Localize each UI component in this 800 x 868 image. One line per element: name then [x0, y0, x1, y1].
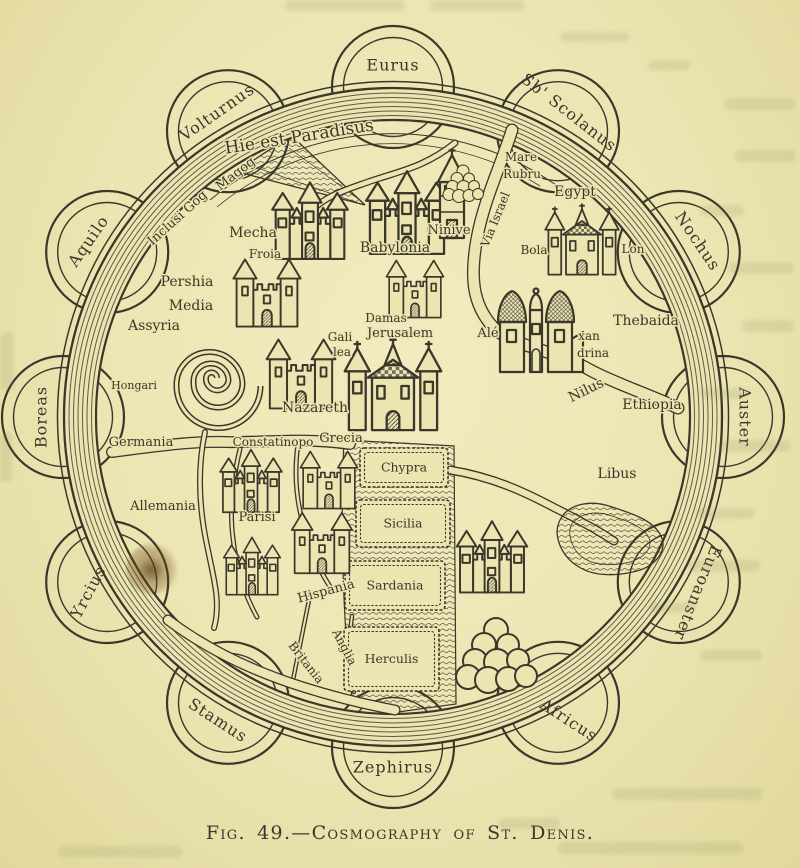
wind-label-eurus: Eurus: [366, 56, 419, 75]
africa-castle: [457, 521, 528, 592]
nazareth-castle: [267, 340, 336, 409]
place-label-germania: Germania: [109, 435, 174, 450]
place-label-ninive: Ninive: [427, 223, 470, 238]
place-label-bola: Bola: [520, 243, 547, 257]
place-label-mare: Mare: [505, 150, 537, 164]
grecia-castle: [300, 451, 357, 508]
place-label-mecha: Mecha: [229, 225, 277, 241]
hispania-castle: [292, 513, 352, 573]
island-chypra: Chypra: [360, 448, 448, 487]
bleed-text-mark: [58, 846, 183, 857]
froia-castle: [233, 259, 300, 326]
place-label-lon: Lon: [622, 242, 645, 256]
map-interior: ChypraSiciliaSardaniaHerculisHie est Par…: [109, 115, 682, 712]
place-label-hongari: Hongari: [111, 379, 157, 392]
place-label-media: Media: [169, 298, 213, 314]
place-label-damas: Damas: [365, 311, 406, 325]
place-label-ethiopia: Ethiopia: [622, 397, 682, 413]
place-label-assyria: Assyria: [127, 318, 180, 334]
libus-sea-blob: [557, 503, 663, 574]
egypt-castle: [545, 203, 619, 274]
place-label-nilus: Nilus: [566, 375, 607, 406]
constantinople-castle: [220, 450, 282, 513]
map-svg: ChypraSiciliaSardaniaHerculisHie est Par…: [0, 0, 800, 812]
place-label-parisi: Parisi: [238, 510, 275, 525]
grove: [456, 618, 537, 693]
island-sicilia: Sicilia: [356, 500, 450, 547]
damas-castle: [386, 260, 443, 317]
island-label-chypra: Chypra: [381, 460, 428, 475]
jerusalem-castle: [345, 337, 442, 430]
wind-label-yrcius: Yrcius: [66, 562, 110, 622]
wind-label-zephirus: Zephirus: [353, 758, 433, 777]
alexandrina-castle: [498, 289, 583, 373]
parisi-castle: [224, 537, 281, 594]
place-label-jerusalem: Jerusalem: [365, 326, 433, 341]
place-label-pershia: Pershia: [161, 274, 214, 290]
island-label-sardania: Sardania: [367, 578, 424, 593]
island-label-herculis: Herculis: [365, 651, 419, 666]
place-label-egypt: Egypt: [554, 184, 596, 200]
ink-stain-core: [140, 556, 164, 584]
place-label-allemania: Allemania: [129, 499, 196, 514]
island-sardania: Sardania: [345, 561, 445, 610]
place-label-froia: Froia: [249, 247, 281, 261]
place-label-babylonia: Babylonia: [360, 240, 430, 256]
place-label-rubru: Rubru: [503, 167, 541, 181]
place-label-al: Alé: [476, 326, 499, 341]
place-label-xan: xan: [578, 329, 600, 343]
place-label-lea: lea: [333, 345, 351, 359]
wind-label-africus: Africus: [536, 694, 601, 746]
place-label-drina: drina: [577, 346, 609, 360]
mecha-castle: [272, 182, 348, 259]
island-label-sicilia: Sicilia: [383, 516, 423, 531]
figure-caption: Fig. 49.—Cosmography of St. Denis.: [0, 822, 800, 844]
place-label-grecia: Grecia: [319, 431, 363, 446]
place-label-thebaida: Thebaida: [613, 313, 679, 329]
place-label-constatinopo: Constatinopo: [233, 435, 314, 449]
wind-label-boreas: Boreas: [32, 386, 51, 448]
place-label-gali: Gali: [328, 330, 353, 344]
wind-label-auster: Auster: [736, 386, 755, 447]
place-label-nazareth: Nazareth: [282, 400, 348, 416]
place-label-libus: Libus: [598, 466, 637, 482]
